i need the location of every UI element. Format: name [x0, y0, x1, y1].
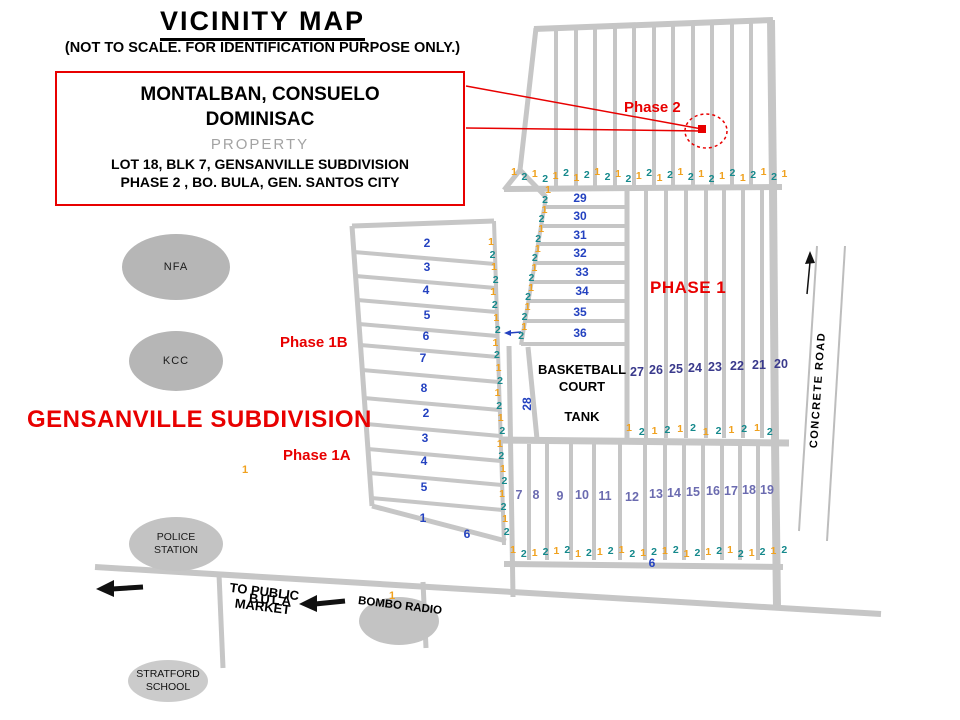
dimension-number: 2 — [750, 169, 756, 181]
dimension-number: 2 — [781, 544, 787, 556]
dimension-number: 2 — [767, 426, 773, 438]
dimension-number: 2 — [492, 299, 498, 311]
dimension-number: 2 — [502, 475, 508, 487]
dimension-number: 1 — [719, 170, 725, 182]
lot-number: 16 — [706, 484, 720, 498]
dimension-number: 1 — [502, 513, 508, 525]
dimension-number: 2 — [504, 526, 510, 538]
lot-number: 6 — [649, 556, 656, 570]
label-phase-1a: Phase 1A — [283, 447, 351, 464]
dimension-number: 2 — [605, 171, 611, 183]
lot-number: 2 — [424, 236, 431, 250]
dimension-number: 1 — [652, 425, 658, 437]
dimension-number: 2 — [494, 349, 500, 361]
dimension-number: 2 — [563, 167, 569, 179]
dimension-number: 2 — [518, 330, 524, 342]
lot-number: 1 — [420, 511, 427, 525]
lot-number: 20 — [774, 357, 788, 371]
dimension-number: 2 — [639, 426, 645, 438]
lot-number: 35 — [573, 305, 586, 319]
dimension-number: 1 — [662, 545, 668, 557]
lot-number: 14 — [667, 486, 681, 500]
lot-number: 2 — [423, 406, 430, 420]
lot-number: 29 — [573, 191, 586, 205]
dimension-number: 1 — [491, 261, 497, 273]
dimension-number: 2 — [543, 546, 549, 558]
dimension-number: 2 — [667, 169, 673, 181]
dimension-number: 1 — [727, 544, 733, 556]
dimension-number: 1 — [703, 426, 709, 438]
dimension-number: 2 — [664, 424, 670, 436]
dimension-number: 1 — [496, 362, 502, 374]
lot-number: 22 — [730, 359, 744, 373]
dimension-number: 1 — [781, 168, 787, 180]
lot-number: 1 — [242, 464, 248, 476]
dimension-number: 1 — [626, 422, 632, 434]
label-bula: BULA — [249, 590, 294, 608]
dimension-number: 1 — [594, 166, 600, 178]
lot-number: 7 — [420, 351, 427, 365]
dimension-number: 1 — [684, 548, 690, 560]
dimension-number: 2 — [695, 547, 701, 559]
dimension-number: 2 — [716, 425, 722, 437]
dimension-number: 1 — [488, 236, 494, 248]
lot-number: 28 — [520, 397, 534, 410]
dimension-number: 1 — [495, 387, 501, 399]
dimension-number: 2 — [584, 169, 590, 181]
label-basketball-court: BASKETBALL COURT — [535, 361, 629, 395]
lot-number: 19 — [760, 483, 774, 497]
dimension-number: 2 — [586, 547, 592, 559]
dimension-number: 1 — [490, 286, 496, 298]
dimension-number: 1 — [575, 548, 581, 560]
dimension-number: 2 — [497, 375, 503, 387]
lot-number: 21 — [752, 358, 766, 372]
dimension-number: 1 — [493, 312, 499, 324]
dimension-number: 1 — [532, 547, 538, 559]
dimension-number: 2 — [709, 173, 715, 185]
lot-number: 31 — [573, 228, 586, 242]
dimension-number: 1 — [497, 438, 503, 450]
dimension-number: 2 — [498, 450, 504, 462]
property-word: PROPERTY — [57, 134, 463, 155]
lot-number: 10 — [575, 488, 589, 502]
label-tank: TANK — [535, 409, 629, 424]
dimension-number: 1 — [553, 545, 559, 557]
lot-number: 26 — [649, 363, 663, 377]
dimension-number: 2 — [673, 544, 679, 556]
lot-number: 7 — [516, 488, 523, 502]
dimension-number: 1 — [677, 166, 683, 178]
dimension-number: 2 — [716, 545, 722, 557]
dimension-number: 1 — [510, 544, 516, 556]
west-arrow-to-market-icon — [96, 580, 143, 597]
dimension-number: 1 — [597, 546, 603, 558]
label-subdivision-name: GENSANVILLE SUBDIVISION — [27, 406, 372, 434]
dimension-number: 1 — [615, 168, 621, 180]
owner-name-line1: MONTALBAN, CONSUELO — [57, 82, 463, 107]
dimension-number: 1 — [492, 337, 498, 349]
dimension-number: 2 — [651, 546, 657, 558]
dimension-number: 2 — [771, 171, 777, 183]
dimension-number: 1 — [640, 547, 646, 559]
property-location-marker — [698, 125, 706, 133]
dimension-number: 2 — [495, 324, 501, 336]
lot-number: 33 — [575, 265, 588, 279]
lot-number: 6 — [423, 329, 430, 343]
lot-number: 4 — [423, 283, 430, 297]
dimension-number: 1 — [573, 172, 579, 184]
dimension-number: 1 — [749, 547, 755, 559]
dimension-number: 2 — [729, 167, 735, 179]
dimension-number: 1 — [761, 166, 767, 178]
dimension-number: 1 — [553, 170, 559, 182]
dimension-number: 2 — [738, 548, 744, 560]
dimension-number: 2 — [521, 548, 527, 560]
label-phase-1b: Phase 1B — [280, 334, 348, 351]
dimension-number: 1 — [754, 422, 760, 434]
dimension-number: 1 — [619, 544, 625, 556]
dimension-number: 2 — [741, 423, 747, 435]
lot-number: 32 — [573, 246, 586, 260]
dimension-number: 2 — [496, 400, 502, 412]
landmark-nfa: NFA — [122, 234, 230, 300]
dimension-number: 1 — [636, 170, 642, 182]
lot-number: 4 — [421, 454, 428, 468]
lot-number: 27 — [630, 365, 644, 379]
lot-number: 3 — [424, 260, 431, 274]
page-title: VICINITY MAP — [85, 6, 440, 41]
lot-number: 17 — [724, 484, 738, 498]
dimension-number: 2 — [760, 546, 766, 558]
lot-number: 34 — [575, 284, 588, 298]
lot-number: 15 — [686, 485, 700, 499]
lot-number: 6 — [464, 527, 471, 541]
dimension-number: 1 — [511, 166, 517, 178]
dimension-number: 1 — [499, 488, 505, 500]
lot-number: 23 — [708, 360, 722, 374]
dimension-number: 2 — [688, 171, 694, 183]
dimension-number: 1 — [500, 463, 506, 475]
dimension-number: 2 — [625, 173, 631, 185]
vicinity-map: VICINITY MAP (NOT TO SCALE. FOR IDENTIFI… — [0, 0, 960, 720]
lot-number: 11 — [598, 489, 611, 503]
dimension-number: 1 — [705, 546, 711, 558]
dimension-number: 1 — [677, 423, 683, 435]
map-subtitle: (NOT TO SCALE. FOR IDENTIFICATION PURPOS… — [30, 40, 495, 56]
landmark-police-station: POLICE STATION — [129, 517, 223, 571]
lot-number: 25 — [669, 362, 683, 376]
dimension-number: 2 — [521, 171, 527, 183]
lot-number: 12 — [625, 490, 639, 504]
lot-description: LOT 18, BLK 7, GENSANVILLE SUBDIVISION — [57, 155, 463, 173]
dimension-number: 2 — [501, 501, 507, 513]
label-phase-2: Phase 2 — [624, 99, 681, 116]
lot-number: 24 — [688, 361, 702, 375]
lot-number: 8 — [421, 381, 428, 395]
dimension-number: 2 — [690, 422, 696, 434]
dimension-number: 1 — [728, 424, 734, 436]
lot-number: 5 — [421, 480, 428, 494]
label-stratford-school: STRATFORD SCHOOL — [118, 668, 218, 694]
dimension-number: 1 — [740, 172, 746, 184]
lot-number: 18 — [742, 483, 756, 497]
dimension-number: 2 — [564, 544, 570, 556]
label-phase-1: PHASE 1 — [650, 278, 726, 298]
dimension-number: 2 — [490, 249, 496, 261]
lot-number: 5 — [424, 308, 431, 322]
dimension-number: 2 — [646, 167, 652, 179]
phase-description: PHASE 2 , BO. BULA, GEN. SANTOS CITY — [57, 173, 463, 191]
dimension-number: 2 — [499, 425, 505, 437]
dimension-number: 1 — [498, 412, 504, 424]
lot-number: 30 — [573, 209, 586, 223]
dimension-number: 1 — [657, 172, 663, 184]
dimension-number: 1 — [532, 168, 538, 180]
property-info-box: MONTALBAN, CONSUELO DOMINISAC PROPERTY L… — [55, 71, 465, 206]
dimension-number: 2 — [493, 274, 499, 286]
lot-number: 8 — [533, 488, 540, 502]
dimension-number: 1 — [770, 545, 776, 557]
dimension-number: 2 — [629, 548, 635, 560]
lot-number: 3 — [422, 431, 429, 445]
dimension-number: 1 — [698, 168, 704, 180]
lot-number: 9 — [557, 489, 564, 503]
owner-name-line2: DOMINISAC — [57, 107, 463, 132]
lot-number: 1 — [389, 590, 395, 602]
landmark-kcc: KCC — [129, 331, 223, 391]
dimension-number: 2 — [608, 545, 614, 557]
lot-number: 36 — [573, 326, 586, 340]
lot-number: 13 — [649, 487, 663, 501]
